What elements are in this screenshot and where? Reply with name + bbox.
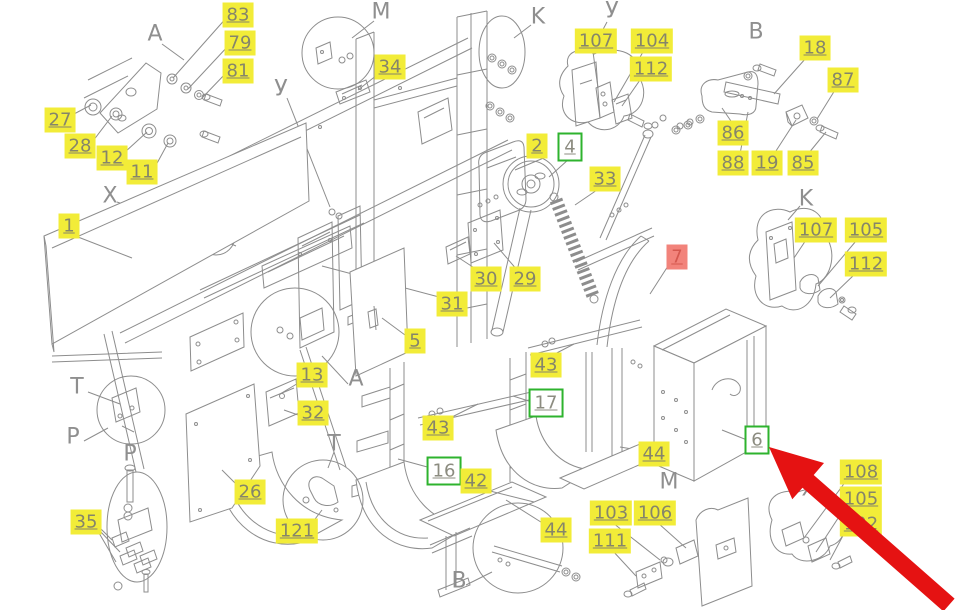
part-label-33[interactable]: 33: [590, 167, 621, 192]
labels-layer: 8379812728121113410710411218878688198510…: [0, 0, 955, 610]
view-letter-A: A: [348, 367, 363, 392]
view-letter-B: B: [748, 20, 763, 45]
part-label-26[interactable]: 26: [235, 480, 266, 505]
part-label-44[interactable]: 44: [639, 442, 670, 467]
part-label-17[interactable]: 17: [529, 389, 564, 418]
part-label-4[interactable]: 4: [558, 133, 583, 162]
part-label-32[interactable]: 32: [298, 401, 329, 426]
view-letter-K: K: [531, 5, 545, 30]
part-label-34[interactable]: 34: [375, 55, 406, 80]
view-letter-A: A: [147, 22, 162, 47]
part-label-18[interactable]: 18: [800, 36, 831, 61]
part-label-111[interactable]: 111: [589, 529, 631, 554]
view-letter-B: B: [451, 569, 466, 594]
part-label-30[interactable]: 30: [471, 267, 502, 292]
view-letter-У: У: [605, 0, 618, 24]
part-label-43[interactable]: 43: [423, 416, 454, 441]
part-label-11[interactable]: 11: [127, 160, 158, 185]
part-label-42[interactable]: 42: [461, 469, 492, 494]
part-label-31[interactable]: 31: [437, 292, 468, 317]
view-letter-M: M: [660, 470, 679, 495]
part-label-13[interactable]: 13: [297, 363, 328, 388]
part-label-106[interactable]: 106: [634, 501, 676, 526]
part-label-81[interactable]: 81: [223, 59, 254, 84]
part-label-102[interactable]: 102: [840, 512, 882, 537]
part-label-108[interactable]: 108: [840, 460, 882, 485]
part-label-105[interactable]: 105: [840, 487, 882, 512]
view-letter-X: X: [801, 477, 816, 502]
view-letter-M: M: [372, 0, 391, 25]
part-label-88[interactable]: 88: [718, 151, 749, 176]
part-label-35[interactable]: 35: [71, 510, 102, 535]
parts-diagram-page: 8379812728121113410710411218878688198510…: [0, 0, 955, 610]
part-label-27[interactable]: 27: [45, 108, 76, 133]
part-label-1[interactable]: 1: [59, 214, 80, 239]
part-label-83[interactable]: 83: [223, 3, 254, 28]
part-label-5[interactable]: 5: [405, 329, 426, 354]
part-label-107[interactable]: 107: [795, 218, 837, 243]
view-letter-K: K: [799, 187, 813, 212]
part-label-79[interactable]: 79: [225, 31, 256, 56]
part-label-7[interactable]: 7: [667, 245, 688, 270]
view-letter-T: T: [70, 375, 83, 400]
view-letter-P: P: [66, 425, 79, 450]
part-label-112[interactable]: 112: [630, 57, 672, 82]
part-label-6[interactable]: 6: [745, 426, 770, 455]
part-label-107[interactable]: 107: [575, 29, 617, 54]
part-label-86[interactable]: 86: [718, 121, 749, 146]
part-label-2[interactable]: 2: [527, 134, 548, 159]
part-label-28[interactable]: 28: [65, 134, 96, 159]
view-letter-P: P: [123, 442, 136, 467]
view-letter-У: У: [274, 77, 287, 102]
part-label-112[interactable]: 112: [845, 252, 887, 277]
view-letter-T: T: [327, 432, 340, 457]
part-label-105[interactable]: 105: [845, 218, 887, 243]
view-letter-X: X: [102, 184, 117, 209]
part-label-103[interactable]: 103: [590, 501, 632, 526]
part-label-44[interactable]: 44: [541, 518, 572, 543]
part-label-29[interactable]: 29: [510, 267, 541, 292]
part-label-121[interactable]: 121: [276, 519, 318, 544]
part-label-104[interactable]: 104: [631, 29, 673, 54]
part-label-43[interactable]: 43: [531, 353, 562, 378]
part-label-16[interactable]: 16: [427, 457, 462, 486]
part-label-19[interactable]: 19: [752, 151, 783, 176]
part-label-12[interactable]: 12: [97, 146, 128, 171]
part-label-87[interactable]: 87: [828, 68, 859, 93]
part-label-85[interactable]: 85: [788, 151, 819, 176]
